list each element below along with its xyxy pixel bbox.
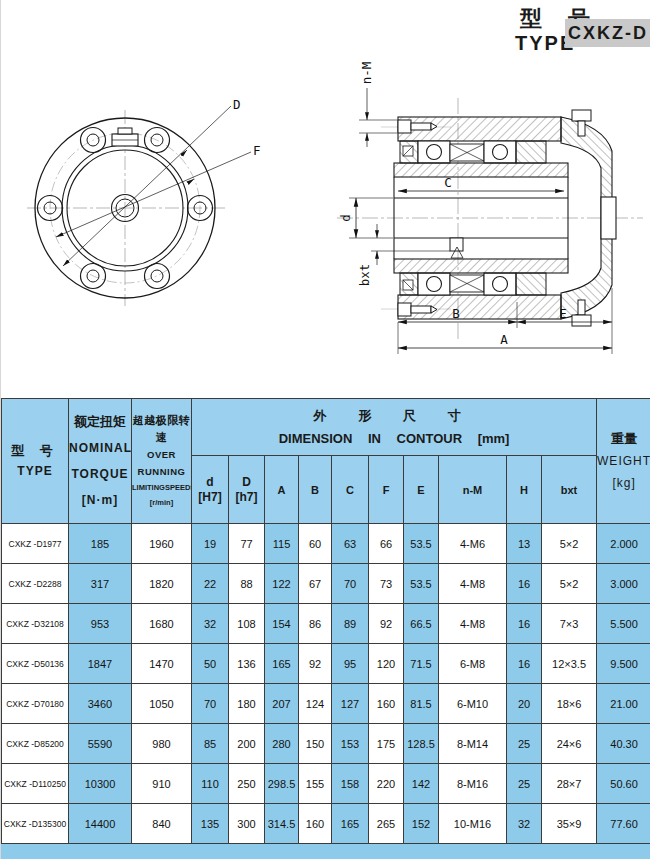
value-cell: 155: [299, 764, 332, 804]
dim-label-B: B: [452, 306, 460, 321]
table-body: CXKZ -D19771851960197711560636653.54-M61…: [2, 524, 650, 844]
value-cell: 122: [265, 564, 299, 604]
value-cell: 32: [507, 804, 542, 844]
value-cell: 110: [192, 764, 229, 804]
value-cell: 81.5: [404, 684, 439, 724]
value-cell: 50.60: [597, 764, 650, 804]
dim-label-A: A: [500, 332, 508, 347]
value-cell: 20: [507, 684, 542, 724]
bottom-accent-bar: [1, 843, 650, 859]
value-cell: 21.00: [597, 684, 650, 724]
table-row: CXKZ -D85200559098085200280150153175128.…: [2, 724, 650, 764]
value-cell: 5590: [69, 724, 132, 764]
value-cell: 25: [507, 764, 542, 804]
value-cell: 9.500: [597, 644, 650, 684]
value-cell: 77: [229, 524, 265, 564]
value-cell: 4-M8: [439, 564, 507, 604]
value-cell: 22: [192, 564, 229, 604]
value-cell: 840: [132, 804, 192, 844]
value-cell: 8-M14: [439, 724, 507, 764]
value-cell: 160: [299, 804, 332, 844]
value-cell: 185: [69, 524, 132, 564]
value-cell: 19: [192, 524, 229, 564]
table-row: CXKZ -D3210895316803210815486899266.54-M…: [2, 604, 650, 644]
value-cell: 40.30: [597, 724, 650, 764]
value-cell: 53.5: [404, 524, 439, 564]
table-row: CXKZ -D70180346010507018020712412716081.…: [2, 684, 650, 724]
dim-label-F-front: F: [253, 143, 261, 158]
value-cell: 88: [229, 564, 265, 604]
value-cell: 120: [369, 644, 404, 684]
value-cell: 10300: [69, 764, 132, 804]
value-cell: 66.5: [404, 604, 439, 644]
value-cell: 16: [507, 604, 542, 644]
col-header-type-cn: 型 号: [2, 441, 68, 461]
value-cell: 207: [265, 684, 299, 724]
col-header-bxt: bxt: [542, 456, 597, 524]
value-cell: 158: [332, 764, 369, 804]
model-cell: CXKZ -D50136: [2, 644, 69, 684]
keyway-top: [112, 128, 138, 146]
value-cell: 6-M10: [439, 684, 507, 724]
dim-label-bxt: bxt: [357, 264, 372, 287]
value-cell: 115: [265, 524, 299, 564]
value-cell: 175: [369, 724, 404, 764]
value-cell: 180: [229, 684, 265, 724]
keyway-section: [450, 238, 463, 258]
value-cell: 7×3: [542, 604, 597, 644]
model-cell: CXKZ -D85200: [2, 724, 69, 764]
value-cell: 63: [332, 524, 369, 564]
model-cell: CXKZ -D32108: [2, 604, 69, 644]
value-cell: 32: [192, 604, 229, 644]
value-cell: 136: [229, 644, 265, 684]
value-cell: 5×2: [542, 564, 597, 604]
value-cell: 85: [192, 724, 229, 764]
value-cell: 150: [299, 724, 332, 764]
value-cell: 13: [507, 524, 542, 564]
dim-label-C: C: [444, 175, 452, 190]
col-header-A: A: [265, 456, 299, 524]
spec-table: 型 号 TYPE 额定扭矩 NOMINAL TORQUE [N·m] 超越极限转…: [1, 398, 650, 844]
value-cell: 66: [369, 524, 404, 564]
model-cell: CXKZ -D110250: [2, 764, 69, 804]
value-cell: 70: [192, 684, 229, 724]
value-cell: 12×3.5: [542, 644, 597, 684]
technical-drawings: D F: [1, 0, 650, 398]
col-header-type-en: TYPE: [2, 461, 68, 481]
end-cover: [601, 197, 616, 239]
value-cell: 8-M16: [439, 764, 507, 804]
value-cell: 300: [229, 804, 265, 844]
dim-label-E: E: [559, 306, 567, 321]
value-cell: 108: [229, 604, 265, 644]
col-header-D: D [h7]: [229, 456, 265, 524]
value-cell: 280: [265, 724, 299, 764]
value-cell: 16: [507, 564, 542, 604]
value-cell: 1847: [69, 644, 132, 684]
col-header-speed: 超越极限转速 OVER RUNNING LIMITINGSPEEDS [r/mi…: [132, 399, 192, 524]
value-cell: 24×6: [542, 724, 597, 764]
dim-label-d: d: [338, 214, 353, 222]
col-header-B: B: [299, 456, 332, 524]
bearings-top: [400, 141, 546, 163]
value-cell: 28×7: [542, 764, 597, 804]
value-cell: 250: [229, 764, 265, 804]
value-cell: 1470: [132, 644, 192, 684]
value-cell: 92: [369, 604, 404, 644]
value-cell: 35×9: [542, 804, 597, 844]
value-cell: 3.000: [597, 564, 650, 604]
value-cell: 1820: [132, 564, 192, 604]
table-row: CXKZ -D11025010300910110250298.515515822…: [2, 764, 650, 804]
dim-label-nM: n-M: [359, 62, 374, 85]
value-cell: 142: [404, 764, 439, 804]
value-cell: 200: [229, 724, 265, 764]
col-header-weight: 重量 WEIGHT [kg]: [597, 399, 650, 524]
value-cell: 77.60: [597, 804, 650, 844]
value-cell: 10-M16: [439, 804, 507, 844]
col-header-d: d [H7]: [192, 456, 229, 524]
value-cell: 152: [404, 804, 439, 844]
col-header-torque: 额定扭矩 NOMINAL TORQUE [N·m]: [69, 399, 132, 524]
value-cell: 16: [507, 644, 542, 684]
value-cell: 50: [192, 644, 229, 684]
value-cell: 4-M6: [439, 524, 507, 564]
section-view-drawing: n-M C d bxt B E A: [337, 62, 643, 354]
value-cell: 317: [69, 564, 132, 604]
value-cell: 3460: [69, 684, 132, 724]
value-cell: 135: [192, 804, 229, 844]
value-cell: 2.000: [597, 524, 650, 564]
table-row: CXKZ -D501361847147050136165929512071.56…: [2, 644, 650, 684]
value-cell: 124: [299, 684, 332, 724]
value-cell: 5.500: [597, 604, 650, 644]
value-cell: 95: [332, 644, 369, 684]
value-cell: 165: [332, 804, 369, 844]
value-cell: 67: [299, 564, 332, 604]
value-cell: 127: [332, 684, 369, 724]
model-cell: CXKZ -D1977: [2, 524, 69, 564]
value-cell: 220: [369, 764, 404, 804]
col-header-H: H: [507, 456, 542, 524]
bearings-bottom: [400, 273, 546, 295]
value-cell: 92: [299, 644, 332, 684]
value-cell: 1960: [132, 524, 192, 564]
model-cell: CXKZ -D2288: [2, 564, 69, 604]
col-header-E: E: [404, 456, 439, 524]
col-header-C: C: [332, 456, 369, 524]
col-header-F: F: [369, 456, 404, 524]
value-cell: 298.5: [265, 764, 299, 804]
value-cell: 165: [265, 644, 299, 684]
value-cell: 73: [369, 564, 404, 604]
value-cell: 910: [132, 764, 192, 804]
col-header-dimensions: 外 形 尺 寸 DIMENSION IN CONTOUR [mm]: [192, 399, 597, 456]
value-cell: 89: [332, 604, 369, 644]
value-cell: 128.5: [404, 724, 439, 764]
value-cell: 14400: [69, 804, 132, 844]
value-cell: 5×2: [542, 524, 597, 564]
value-cell: 4-M8: [439, 604, 507, 644]
value-cell: 70: [332, 564, 369, 604]
value-cell: 154: [265, 604, 299, 644]
dim-label-D-front: D: [233, 97, 241, 112]
value-cell: 86: [299, 604, 332, 644]
value-cell: 18×6: [542, 684, 597, 724]
value-cell: 953: [69, 604, 132, 644]
model-cell: CXKZ -D135300: [2, 804, 69, 844]
catalog-page: 型 号 TYPE CXKZ-D: [0, 0, 650, 859]
front-view-drawing: D F: [27, 97, 261, 306]
col-header-type: 型 号 TYPE: [2, 399, 69, 524]
spec-table-wrap: 型 号 TYPE 额定扭矩 NOMINAL TORQUE [N·m] 超越极限转…: [1, 398, 650, 844]
value-cell: 53.5: [404, 564, 439, 604]
value-cell: 6-M8: [439, 644, 507, 684]
value-cell: 160: [369, 684, 404, 724]
value-cell: 71.5: [404, 644, 439, 684]
value-cell: 1680: [132, 604, 192, 644]
table-row: CXKZ -D22883171820228812267707353.54-M81…: [2, 564, 650, 604]
value-cell: 25: [507, 724, 542, 764]
value-cell: 1050: [132, 684, 192, 724]
model-cell: CXKZ -D70180: [2, 684, 69, 724]
table-row: CXKZ -D19771851960197711560636653.54-M61…: [2, 524, 650, 564]
value-cell: 60: [299, 524, 332, 564]
value-cell: 314.5: [265, 804, 299, 844]
value-cell: 265: [369, 804, 404, 844]
value-cell: 980: [132, 724, 192, 764]
table-row: CXKZ -D13530014400840135300314.516016526…: [2, 804, 650, 844]
col-header-nM: n-M: [439, 456, 507, 524]
value-cell: 153: [332, 724, 369, 764]
